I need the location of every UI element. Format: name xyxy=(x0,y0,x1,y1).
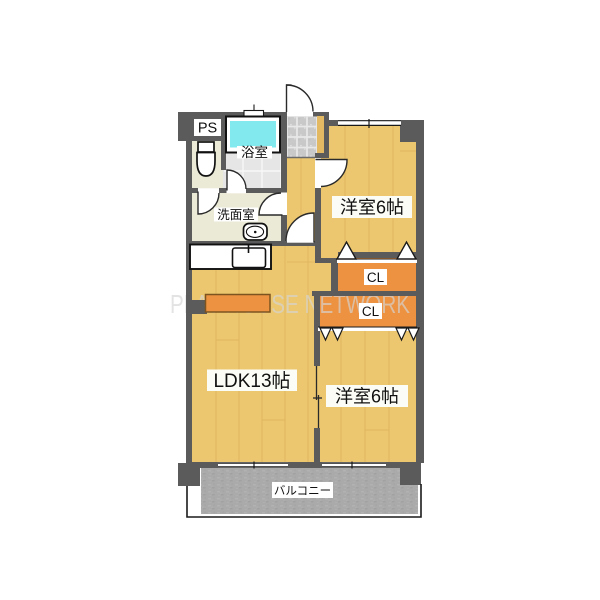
svg-text:CL: CL xyxy=(362,304,380,319)
svg-text:PS: PS xyxy=(198,121,217,137)
svg-text:バルコニー: バルコニー xyxy=(274,485,331,498)
svg-text:洋室6帖: 洋室6帖 xyxy=(340,198,404,218)
svg-text:浴室: 浴室 xyxy=(241,144,268,160)
svg-text:LDK13帖: LDK13帖 xyxy=(213,370,290,392)
svg-text:CL: CL xyxy=(367,270,385,285)
svg-text:洗面室: 洗面室 xyxy=(217,207,255,222)
svg-text:洋室6帖: 洋室6帖 xyxy=(335,387,399,407)
